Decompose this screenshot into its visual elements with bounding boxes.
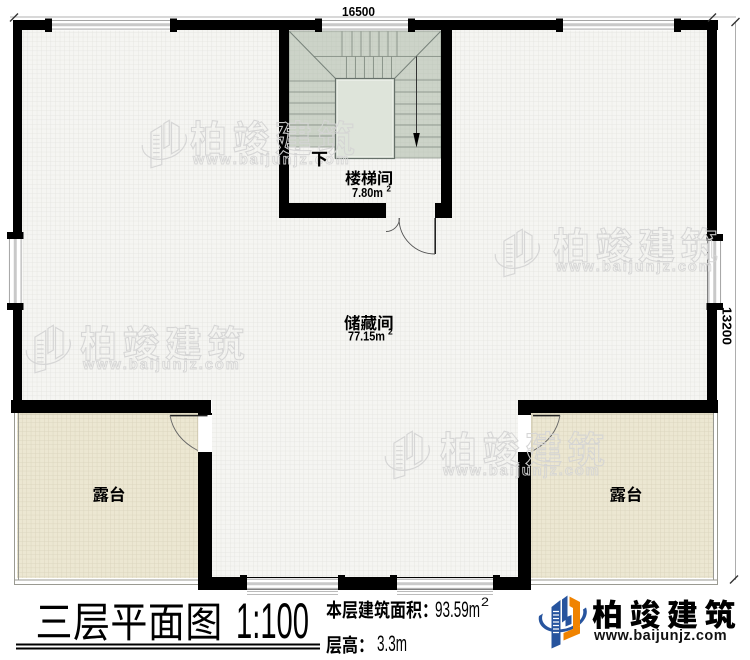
- svg-text:77.15m: 77.15m: [348, 329, 385, 344]
- svg-text:13200: 13200: [720, 307, 735, 345]
- svg-text:2: 2: [481, 595, 489, 609]
- svg-text:3.3m: 3.3m: [377, 631, 407, 656]
- svg-text:16500: 16500: [342, 4, 375, 19]
- svg-text:7.80m: 7.80m: [352, 186, 383, 200]
- svg-text:2: 2: [388, 327, 393, 337]
- svg-text:2: 2: [387, 185, 392, 194]
- svg-text:www.baijunjz.com: www.baijunjz.com: [593, 628, 727, 644]
- svg-text:93.59m: 93.59m: [435, 597, 480, 622]
- svg-text:1:100: 1:100: [236, 593, 309, 649]
